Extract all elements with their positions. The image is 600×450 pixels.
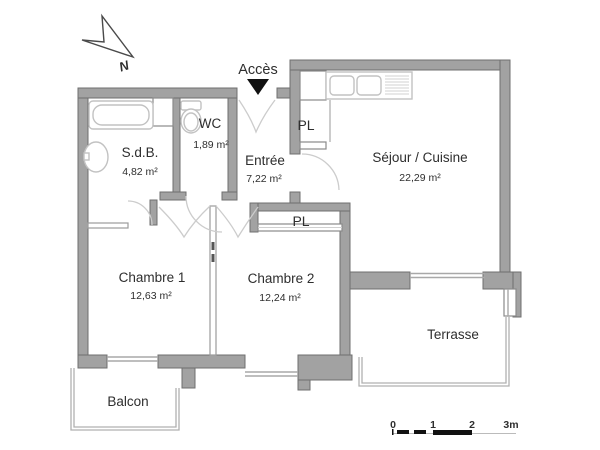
room-label-chambre2: Chambre 2 — [248, 271, 315, 286]
bathtub — [89, 101, 153, 129]
room-label-chambre1: Chambre 1 — [119, 270, 186, 285]
area-label-sdb: 4,82 m² — [122, 166, 158, 178]
area-label-chambre1: 12,63 m² — [130, 290, 172, 302]
room-label-wc: WC — [199, 116, 222, 131]
access-arrow-icon — [247, 79, 269, 95]
room-label-pl-bas: PL — [292, 213, 309, 229]
room-label-balcon: Balcon — [107, 394, 148, 409]
room-label-pl-haut: PL — [297, 117, 314, 133]
scale-tick-2: 2 — [469, 419, 475, 431]
room-label-sdb: S.d.B. — [122, 145, 159, 160]
area-label-sejour: 22,29 m² — [399, 172, 441, 184]
area-label-entree: 7,22 m² — [246, 173, 282, 185]
north-label: N — [117, 57, 131, 74]
access-label: Accès — [238, 62, 278, 78]
scale-tick-1: 1 — [430, 419, 436, 431]
scale-bar: 0 1 2 3m — [390, 419, 519, 435]
north-arrow-icon: N — [82, 16, 133, 75]
area-label-chambre2: 12,24 m² — [259, 292, 301, 304]
room-label-sejour: Séjour / Cuisine — [372, 150, 467, 165]
kitchen-sink — [326, 72, 412, 99]
area-label-wc: 1,89 m² — [193, 139, 229, 151]
room-label-terrasse: Terrasse — [427, 327, 479, 342]
floor-plan: N Accès S.d.B. 4,82 m² WC 1,89 m² Entrée… — [0, 0, 600, 450]
scale-tick-0: 0 — [390, 419, 396, 431]
scale-tick-3m: 3m — [503, 419, 518, 431]
washbasin — [84, 142, 108, 172]
room-label-entree: Entrée — [245, 153, 285, 168]
floor-plan-canvas: N Accès S.d.B. 4,82 m² WC 1,89 m² Entrée… — [0, 0, 600, 450]
